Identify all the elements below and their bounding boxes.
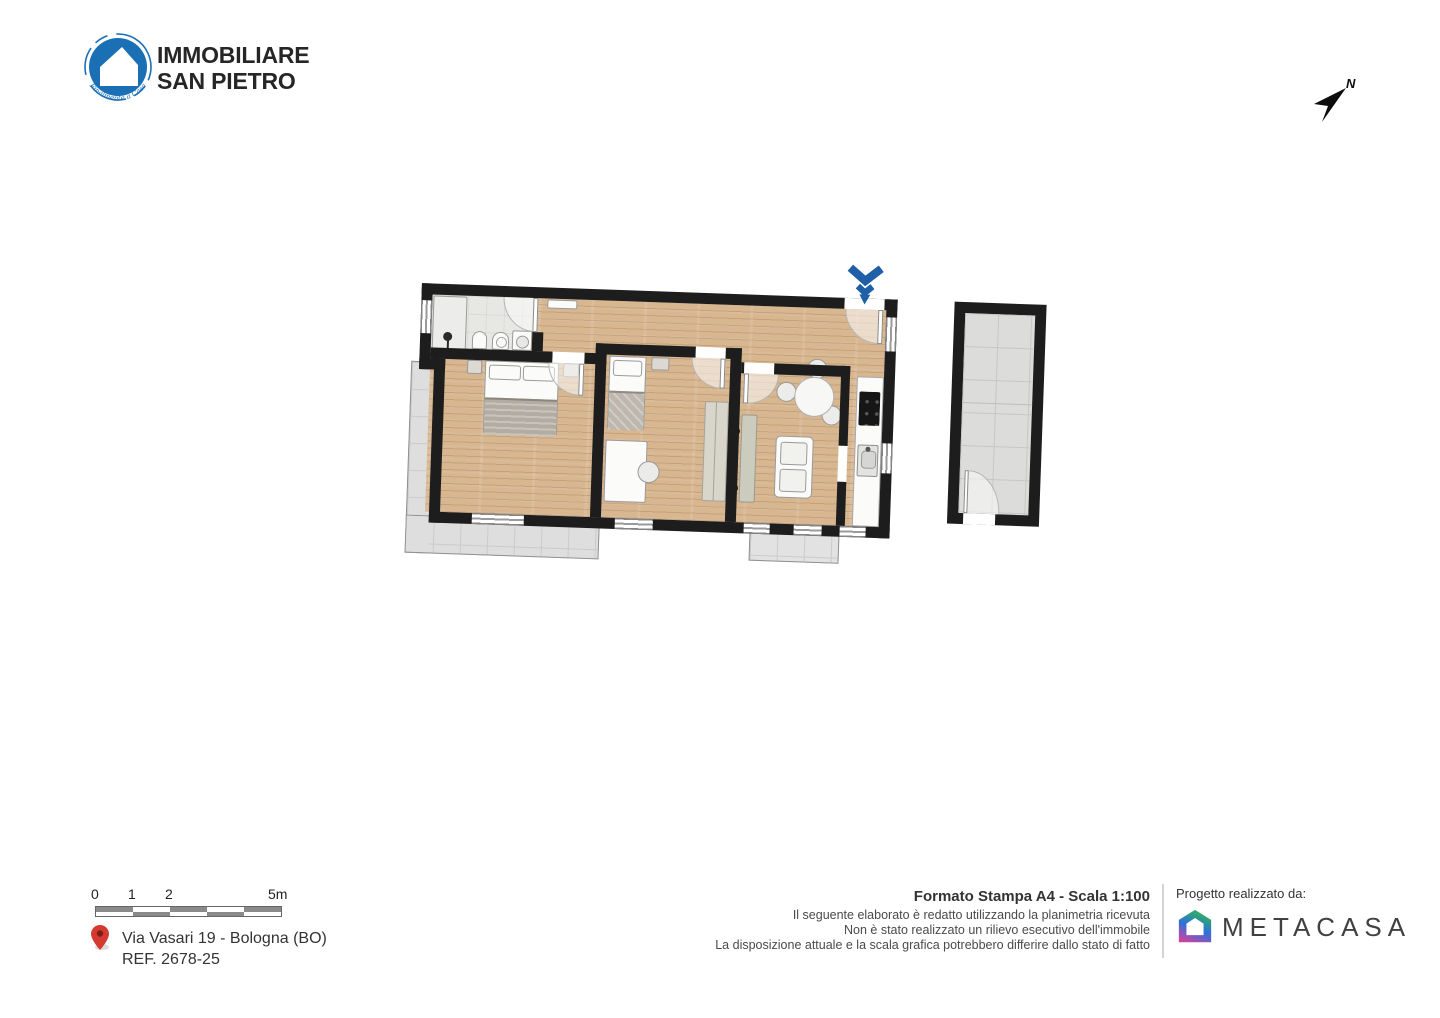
compass-label: N: [1346, 76, 1356, 91]
cellar-door-opening: [963, 513, 995, 525]
reference-number: REF. 2678-25: [122, 949, 327, 970]
scalebar: [95, 906, 282, 917]
nightstand: [651, 357, 669, 371]
divider: [1162, 884, 1164, 958]
sofa-cushion: [780, 442, 808, 466]
disclaimer: Il seguente elaborato è redatto utilizza…: [715, 908, 1150, 952]
pillow: [613, 360, 643, 377]
wall: [532, 332, 544, 351]
pillow: [489, 364, 522, 380]
window: [793, 524, 821, 536]
agency-name-line2: SAN PIETRO: [157, 68, 309, 94]
nightstand: [467, 360, 482, 375]
bed-blanket: [608, 391, 644, 431]
address-block: Via Vasari 19 - Bologna (BO) REF. 2678-2…: [122, 928, 327, 970]
map-pin: [90, 924, 110, 952]
scalebar-label: 0: [91, 886, 99, 902]
window: [615, 518, 653, 530]
window: [881, 443, 893, 473]
print-format-title: Formato Stampa A4 - Scala 1:100: [914, 888, 1150, 905]
agency-name-line1: IMMOBILIARE: [157, 42, 309, 68]
scalebar-segment: [244, 907, 281, 912]
house-in-blue-circle-icon: Finalmente a Casa: [75, 25, 165, 115]
entrance-marker: [844, 264, 887, 305]
scalebar-label: 2: [165, 886, 173, 902]
address-line: Via Vasari 19 - Bologna (BO): [122, 928, 327, 949]
double-chevron-down-icon: [844, 264, 887, 305]
terrace: [406, 516, 429, 552]
bed-blanket: [484, 397, 557, 436]
disclaimer-line: Il seguente elaborato è redatto utilizza…: [715, 908, 1150, 923]
bidet: [472, 331, 488, 350]
scalebar-label: 5m: [268, 886, 287, 902]
sofa-cushion: [779, 469, 807, 493]
floor-plan: [410, 283, 1060, 605]
pass-through-opening: [837, 446, 847, 482]
disclaimer-line: La disposizione attuale e la scala grafi…: [715, 938, 1150, 953]
disclaimer-line: Non è stato realizzato un rilievo esecut…: [715, 923, 1150, 938]
window: [743, 522, 769, 534]
scalebar-label: 1: [128, 886, 136, 902]
scalebar-segment: [133, 912, 170, 917]
credits-label: Progetto realizzato da:: [1176, 886, 1306, 901]
window: [885, 317, 897, 351]
compass: N: [1308, 72, 1364, 128]
window: [472, 513, 524, 526]
metacasa-logo: [1176, 908, 1214, 946]
scalebar-segment: [96, 907, 133, 912]
scalebar-segment: [170, 907, 207, 912]
scalebar-labels: 0 1 2 5m: [95, 886, 295, 904]
door-leaf: [743, 373, 749, 403]
cabinet: [739, 414, 758, 503]
agency-name: IMMOBILIARE SAN PIETRO: [157, 42, 309, 94]
shower: [432, 295, 468, 351]
hall-shelf: [547, 299, 577, 309]
door-leaf: [719, 359, 725, 389]
agency-logo: Finalmente a Casa: [75, 25, 165, 115]
map-pin-icon: [90, 924, 110, 952]
window: [839, 526, 865, 538]
wall: [836, 482, 847, 526]
sink-bowl: [861, 451, 877, 470]
scalebar-segment: [207, 912, 244, 917]
cooktop: [858, 391, 880, 426]
gradient-house-icon: [1176, 908, 1214, 946]
north-arrow-icon: N: [1308, 72, 1364, 128]
metacasa-wordmark: METACASA: [1222, 912, 1411, 943]
window: [420, 300, 432, 333]
floorplan-sheet: Finalmente a Casa IMMOBILIARE SAN PIETRO…: [0, 0, 1440, 1018]
